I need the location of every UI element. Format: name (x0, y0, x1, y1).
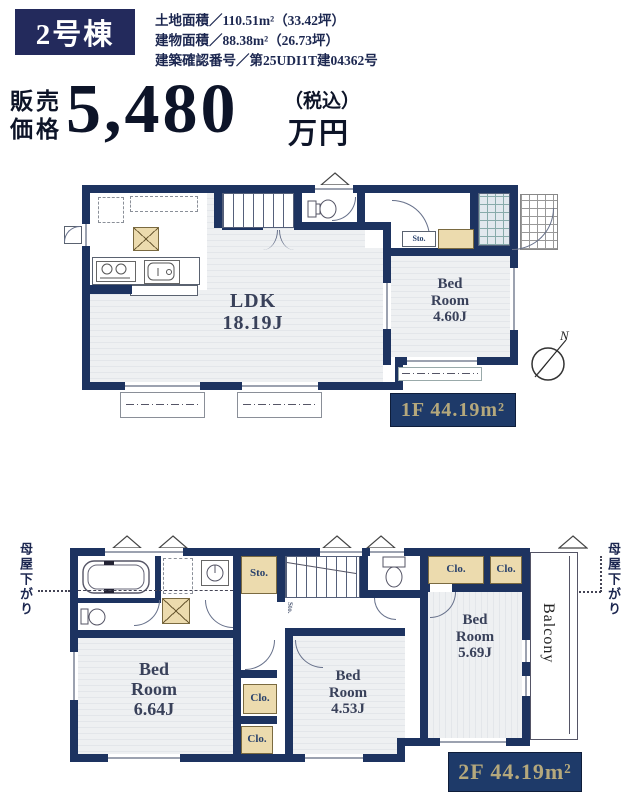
wall (88, 285, 132, 294)
window (522, 676, 530, 696)
storage-label: Sto. (241, 568, 277, 579)
wall (360, 590, 428, 598)
wall (285, 636, 293, 762)
eaves-box (398, 367, 482, 381)
bathtub-icon (82, 560, 150, 594)
wall (233, 556, 241, 762)
wall (241, 670, 277, 678)
floor-storage-icon (162, 598, 190, 624)
bedroom-name2: Room (300, 685, 396, 702)
staircase-1f (222, 193, 294, 228)
bedroom-name1: Bed (428, 612, 522, 629)
counter-dashed (130, 196, 198, 212)
eaves-line (402, 373, 478, 374)
balcony: Balcony (530, 552, 578, 740)
compass-icon: N (527, 328, 575, 386)
ldk-size: 18.19J (193, 312, 313, 334)
entry-tile (478, 193, 510, 246)
closet-label: Clo. (490, 564, 522, 575)
wall (285, 628, 405, 636)
shutter-line (243, 404, 316, 405)
sink-icon (144, 260, 180, 284)
door-arc (245, 640, 275, 670)
closet-label: Clo. (243, 693, 277, 704)
wall (420, 584, 430, 592)
bedroom-size: 5.69J (428, 645, 522, 662)
bedroom-name1: Bed (95, 660, 213, 680)
bedroom-name2: Room (95, 680, 213, 700)
toilet-icon (380, 556, 408, 590)
window (108, 754, 180, 762)
shutter-box (120, 392, 205, 418)
balcony-rail-line (569, 556, 570, 734)
refrigerator-space (98, 197, 124, 223)
wall (452, 584, 530, 592)
wall (78, 630, 241, 638)
ldk-label: LDK 18.19J (193, 290, 313, 334)
washing-machine-space (163, 558, 193, 594)
bedroom-size: 4.60J (400, 309, 500, 326)
bedroom-453-label: Bed Room 4.53J (300, 668, 396, 718)
floorplan-flyer: 2号棟 土地面積／110.51m²（33.42坪） 建物面積／88.38m²（2… (0, 0, 631, 800)
roof-vent-icon (158, 535, 188, 549)
bedroom-569-label: Bed Room 5.69J (428, 612, 522, 662)
floor1-plan: Sto. LDK 18.19J Bed Room 4.60J N (0, 0, 631, 450)
counter-ledge (130, 285, 198, 296)
floor-storage-icon (133, 227, 159, 251)
sliding-door (383, 283, 391, 329)
compass-north-label: N (559, 328, 570, 343)
bedroom-size: 4.53J (300, 701, 396, 718)
roof-slope-line (38, 590, 70, 592)
balcony-label: Balcony (539, 603, 557, 663)
window (370, 548, 404, 556)
window (305, 754, 363, 762)
toilet-icon (80, 606, 106, 628)
window (70, 652, 78, 700)
bedroom-name1: Bed (300, 668, 396, 685)
closet-label: Clo. (241, 734, 273, 745)
window (510, 268, 518, 330)
window (440, 738, 506, 746)
wall (294, 193, 302, 230)
window (242, 382, 318, 390)
roof-vent-icon (320, 172, 350, 186)
roof-slope-line-inner (78, 590, 233, 591)
bedroom-664-label: Bed Room 6.64J (95, 660, 213, 719)
shutter-line (126, 404, 199, 405)
wall (241, 716, 277, 724)
storage-closet (438, 229, 474, 249)
staircase-2f (285, 556, 360, 598)
roof-vent-icon (558, 535, 588, 549)
roof-vent-icon (112, 535, 142, 549)
floor1-area-badge: 1F 44.19m² (390, 393, 516, 427)
back-door-opening (82, 224, 90, 246)
understairs-storage-label: Sto. (286, 602, 294, 613)
bedroom-name1: Bed (400, 276, 500, 293)
window (105, 548, 183, 556)
roof-slope-note-right: 母屋下がり (604, 542, 623, 642)
bedroom-name2: Room (400, 293, 500, 310)
bedroom-name2: Room (428, 629, 522, 646)
wall (277, 556, 285, 602)
wall (82, 185, 518, 193)
roof-vent-icon (366, 535, 396, 549)
shutter-box (237, 392, 322, 418)
roof-vent-icon (322, 535, 352, 549)
window (320, 548, 362, 556)
floor2-plan: 母屋下がり 母屋下がり (0, 450, 631, 800)
bedroom-460-label: Bed Room 4.60J (400, 276, 500, 326)
window (522, 640, 530, 662)
stove-icon (96, 261, 136, 282)
wall (155, 556, 161, 602)
roof-slope-line (600, 556, 602, 592)
window (125, 382, 200, 390)
storage-label: Sto. (402, 235, 436, 243)
ldk-name: LDK (193, 290, 313, 312)
floor2-area-badge: 2F 44.19m² (448, 752, 582, 792)
wall (294, 222, 391, 230)
vanity-sink-icon (201, 560, 229, 586)
closet-label: Clo. (428, 564, 484, 575)
roof-slope-note-left: 母屋下がり (16, 542, 35, 642)
window (315, 185, 353, 193)
window (407, 357, 477, 365)
wall (420, 548, 428, 746)
roof-slope-line (576, 591, 601, 593)
wall (391, 248, 510, 256)
bedroom-size: 6.64J (95, 700, 213, 720)
wall (357, 193, 365, 230)
wall (214, 193, 222, 228)
